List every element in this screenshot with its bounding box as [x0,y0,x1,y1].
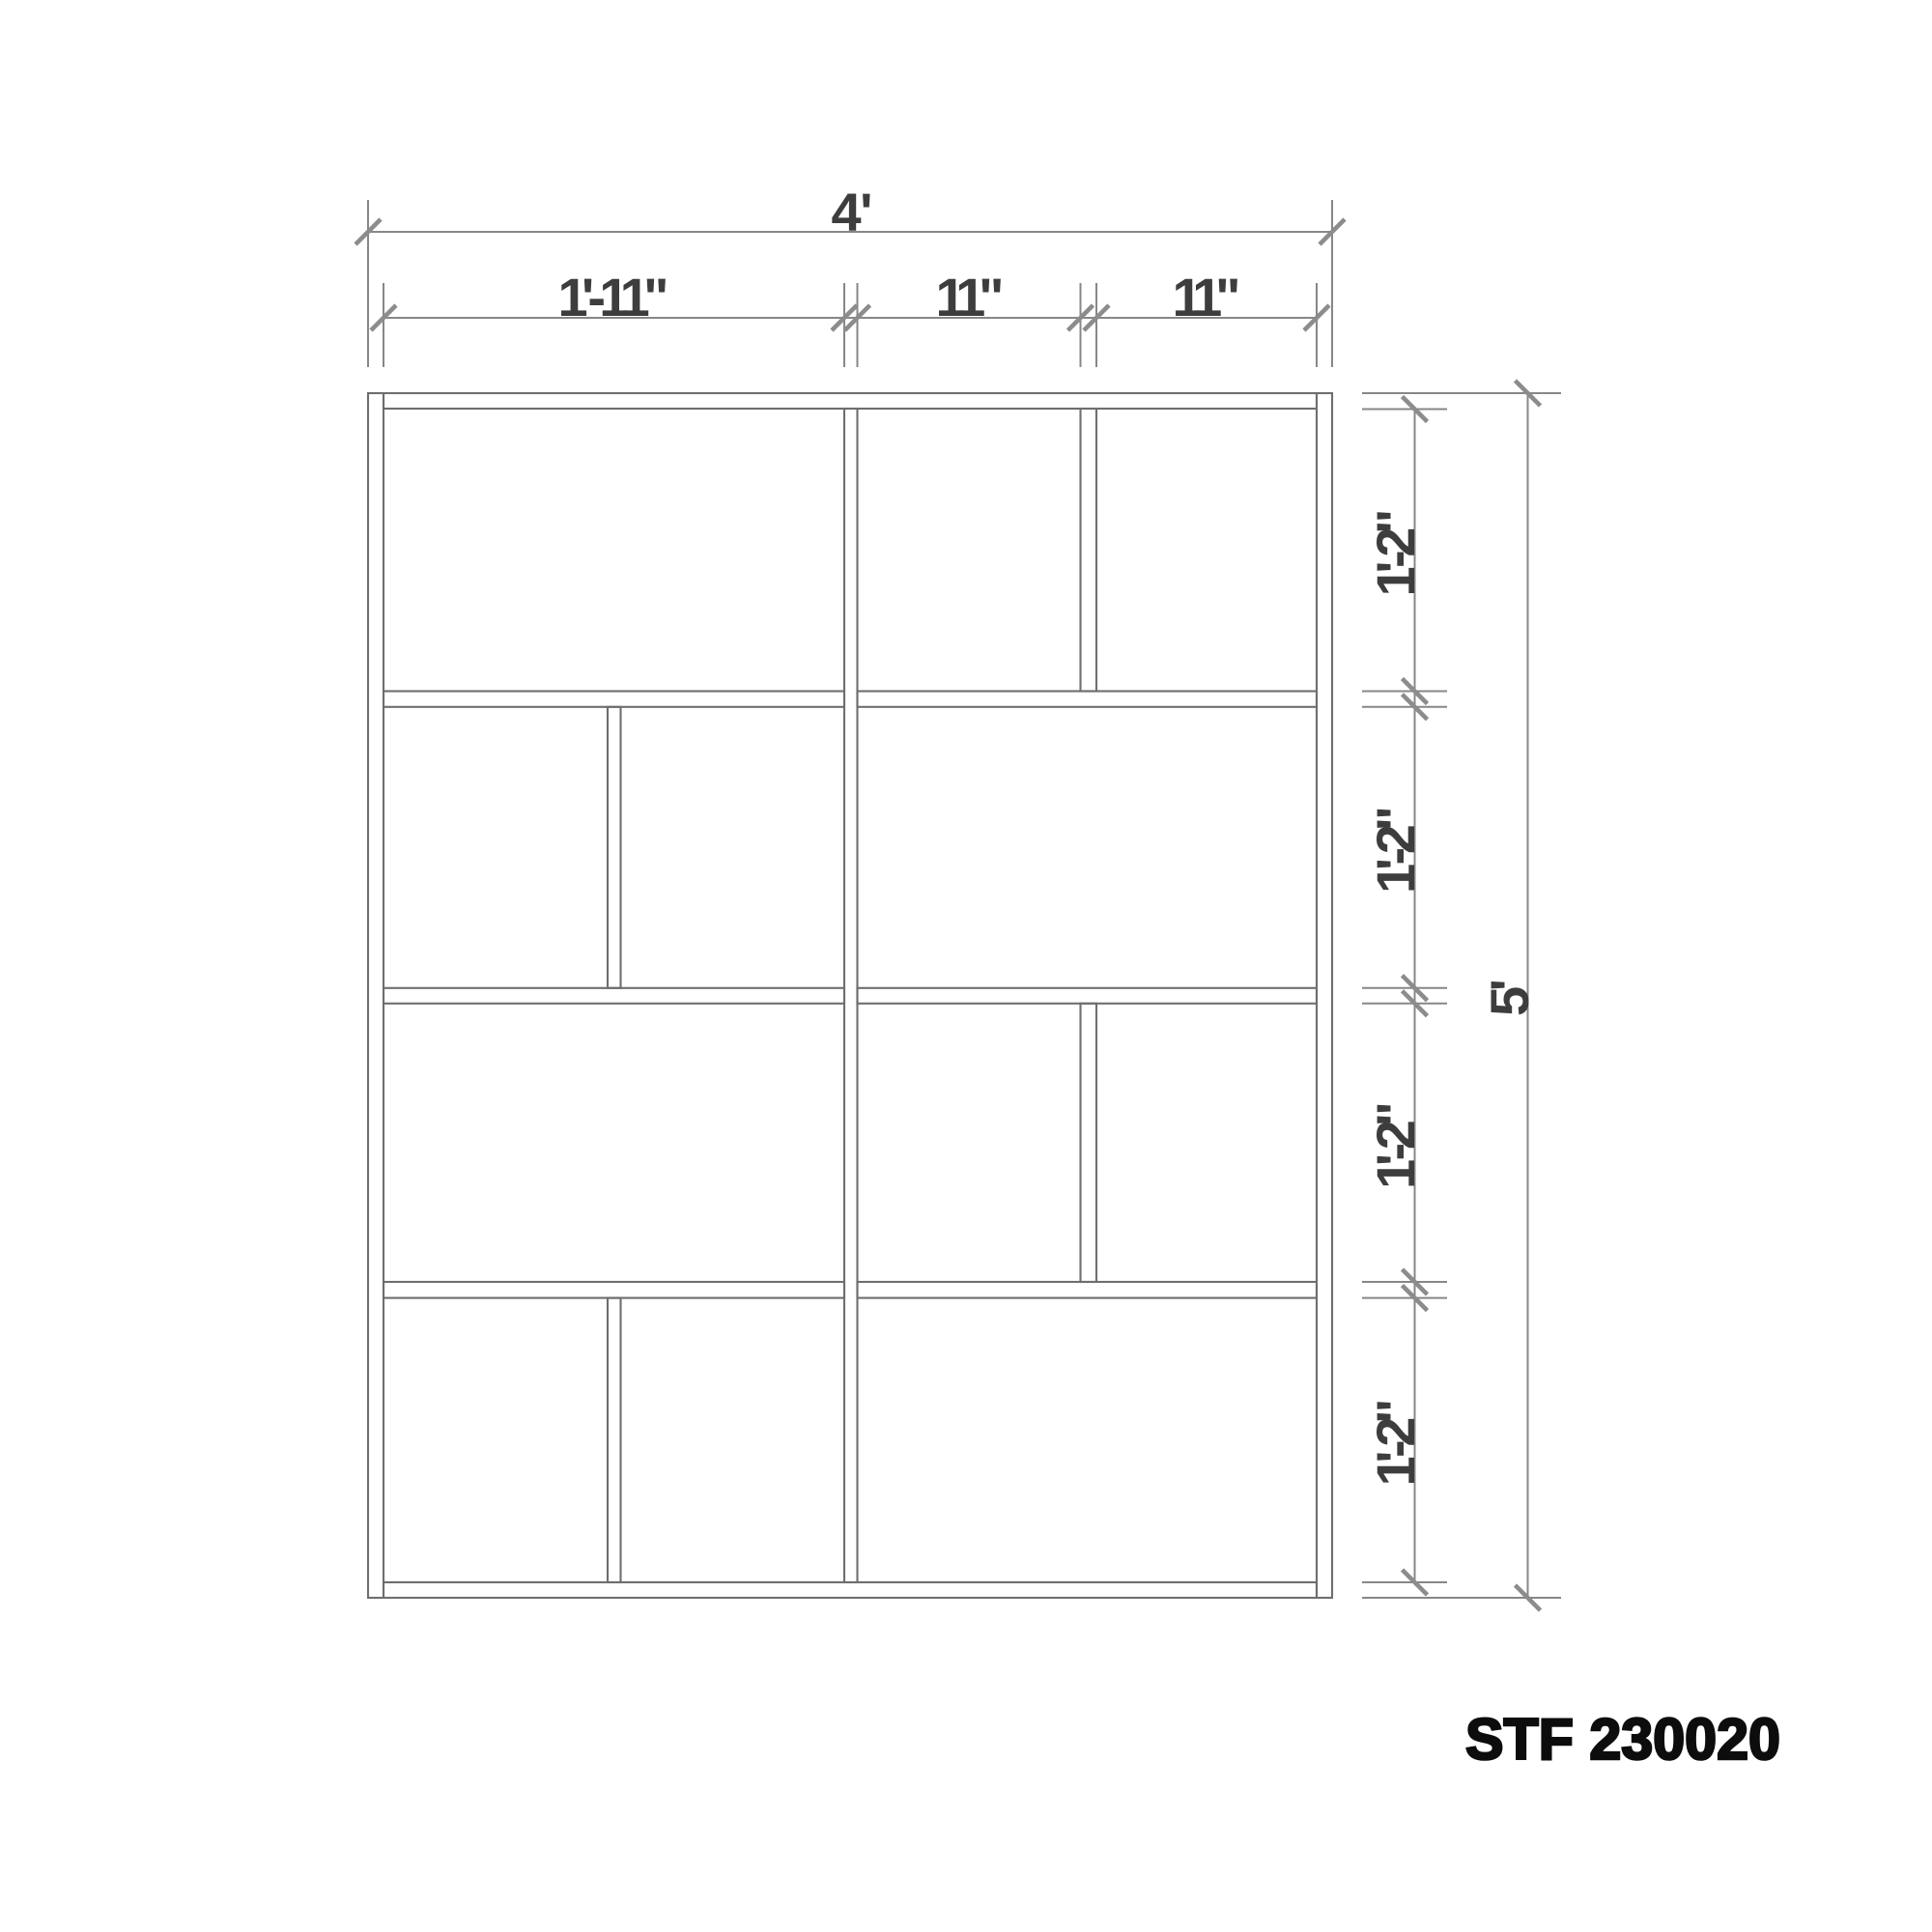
svg-text:1'-2": 1'-2" [1365,509,1426,597]
svg-text:STF 230020: STF 230020 [1465,1707,1780,1772]
svg-text:11": 11" [1173,267,1241,327]
svg-text:11": 11" [936,267,1005,327]
svg-text:1'-11": 1'-11" [558,267,669,327]
svg-text:1'-2": 1'-2" [1365,1101,1426,1189]
svg-text:4': 4' [832,182,873,242]
svg-text:5': 5' [1479,979,1540,1016]
svg-text:1'-2": 1'-2" [1365,1399,1426,1487]
svg-text:1'-2": 1'-2" [1365,806,1426,894]
